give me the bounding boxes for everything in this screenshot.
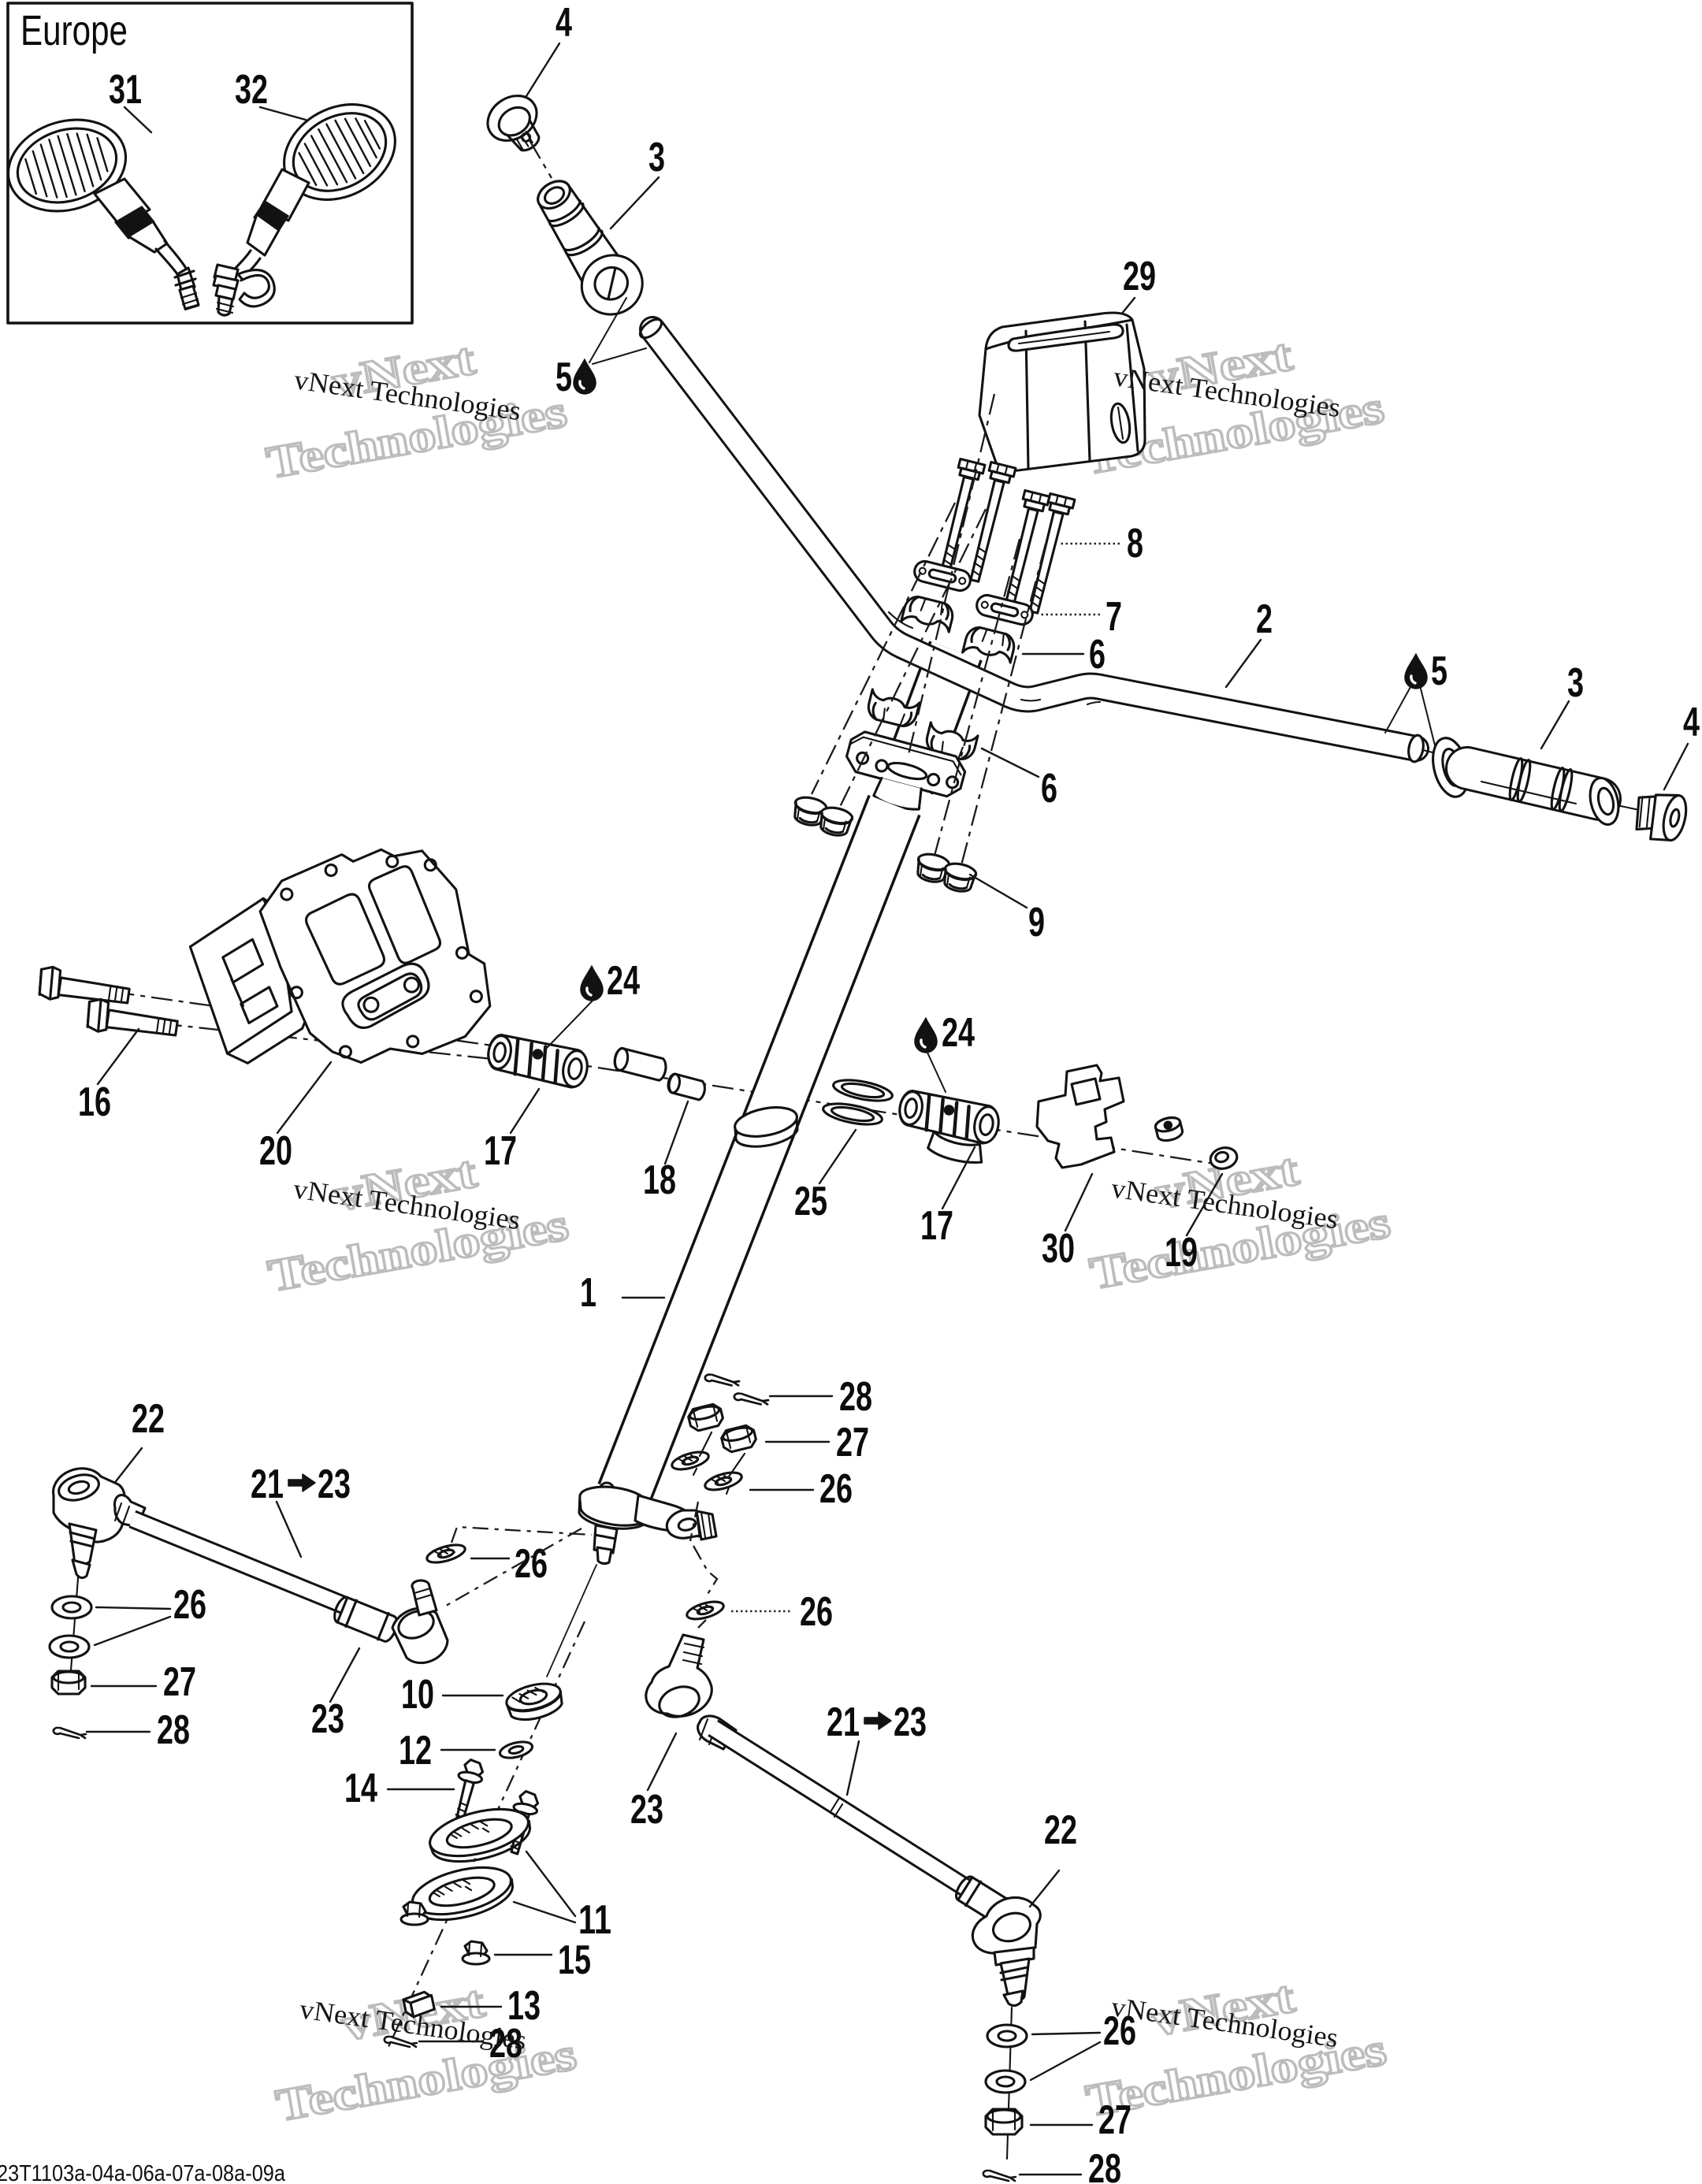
svg-text:12: 12	[399, 1728, 432, 1774]
svg-text:24: 24	[607, 958, 640, 1004]
svg-text:23: 23	[318, 1462, 351, 1507]
svg-text:30: 30	[1042, 1226, 1075, 1272]
svg-text:8: 8	[1127, 521, 1143, 566]
svg-text:26: 26	[800, 1589, 833, 1635]
svg-text:26: 26	[819, 1466, 853, 1512]
svg-text:4: 4	[1683, 700, 1700, 745]
svg-text:6: 6	[1089, 632, 1106, 678]
svg-text:22: 22	[1044, 1807, 1077, 1853]
svg-text:7: 7	[1106, 594, 1122, 640]
svg-text:6: 6	[1041, 766, 1057, 812]
svg-text:31: 31	[109, 67, 142, 113]
svg-text:14: 14	[344, 1766, 377, 1811]
svg-text:28: 28	[1088, 2146, 1121, 2184]
svg-text:17: 17	[484, 1128, 517, 1174]
svg-text:5: 5	[556, 355, 572, 400]
svg-text:3: 3	[648, 135, 665, 180]
svg-text:1: 1	[580, 1270, 596, 1316]
svg-text:21: 21	[251, 1462, 284, 1507]
svg-text:26: 26	[173, 1582, 206, 1628]
svg-text:Europe: Europe	[20, 7, 128, 54]
svg-text:23T1103a-04a-06a-07a-08a-09a: 23T1103a-04a-06a-07a-08a-09a	[0, 2161, 286, 2184]
svg-text:17: 17	[920, 1203, 953, 1249]
svg-text:27: 27	[836, 1420, 869, 1465]
svg-text:5: 5	[1431, 648, 1447, 694]
svg-text:2: 2	[1256, 596, 1273, 642]
svg-text:4: 4	[556, 0, 572, 46]
svg-text:15: 15	[558, 1937, 591, 1983]
svg-text:23: 23	[311, 1696, 344, 1742]
svg-text:10: 10	[401, 1672, 434, 1718]
svg-text:3: 3	[1567, 660, 1584, 706]
svg-text:27: 27	[163, 1659, 196, 1705]
svg-text:23: 23	[894, 1699, 927, 1745]
svg-text:23: 23	[630, 1787, 663, 1833]
svg-text:9: 9	[1028, 900, 1045, 945]
svg-text:18: 18	[643, 1157, 676, 1203]
svg-text:27: 27	[1098, 2097, 1132, 2143]
svg-text:21: 21	[827, 1699, 860, 1745]
svg-text:19: 19	[1165, 1230, 1198, 1276]
svg-text:11: 11	[578, 1897, 611, 1943]
svg-text:16: 16	[78, 1079, 111, 1125]
svg-text:28: 28	[157, 1707, 190, 1753]
svg-text:24: 24	[942, 1010, 975, 1056]
svg-text:22: 22	[132, 1396, 165, 1442]
svg-text:20: 20	[259, 1128, 292, 1174]
svg-text:29: 29	[1123, 254, 1156, 299]
svg-text:32: 32	[235, 67, 268, 113]
svg-text:28: 28	[839, 1374, 872, 1420]
svg-text:25: 25	[794, 1179, 827, 1224]
